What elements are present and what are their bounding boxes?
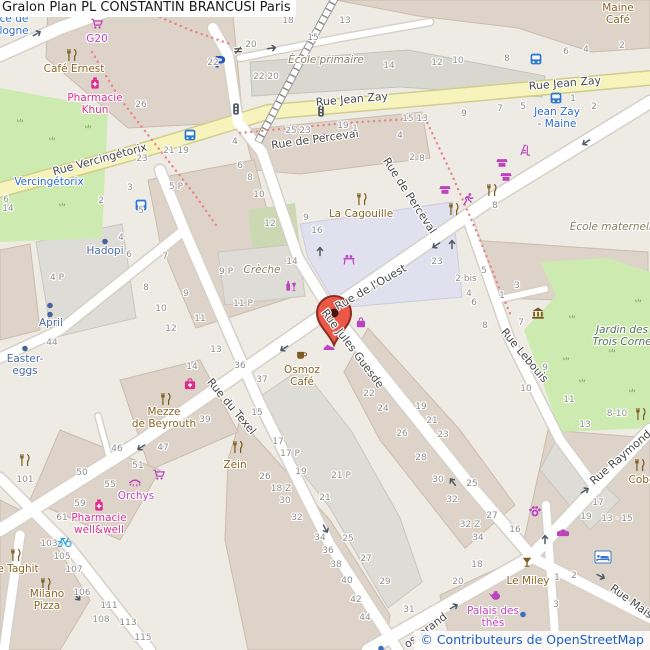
page-title: Gralon Plan PL CONSTANTIN BRANCUSI Paris <box>0 0 296 17</box>
map-base-graphics <box>0 0 650 650</box>
map-canvas[interactable]: P Rue Jean ZayRue Jean ZayRue Vercingéto… <box>0 0 650 650</box>
osm-attribution-link[interactable]: © Contributeurs de OpenStreetMap <box>414 631 650 650</box>
